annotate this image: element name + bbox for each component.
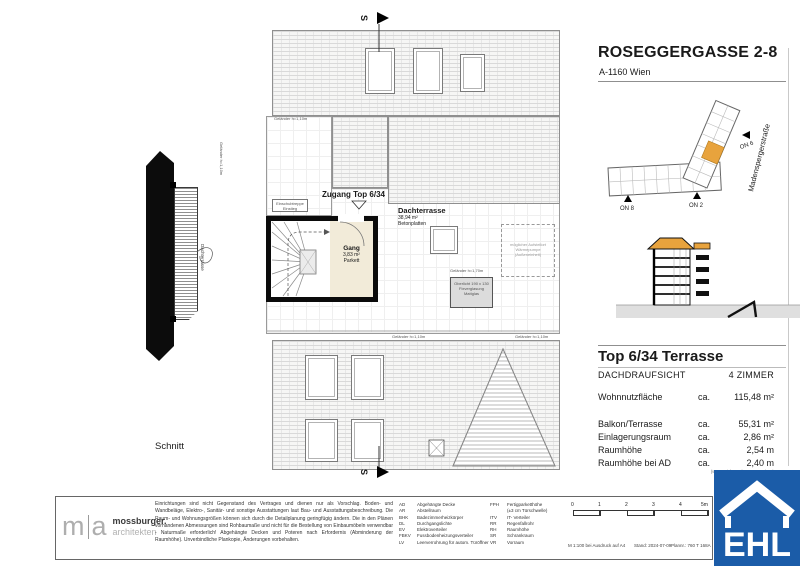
header-rule xyxy=(598,81,786,82)
ehl-logo: EHL xyxy=(714,470,800,566)
unit-title: Top 6/34 Terrasse xyxy=(598,348,723,365)
legend-column-1: ADAbgehängte Decke ARAbstellraum BHKBade… xyxy=(399,502,489,546)
entrance-on2: ON 2 xyxy=(689,203,704,209)
print-scale-note: M 1:100 bei Ausdruck auf A4 xyxy=(568,543,625,548)
terrace-floor: Betonplatten xyxy=(398,221,446,227)
plan-number: Plannr.: 760 T 168A xyxy=(671,543,711,548)
unit-rule-bottom xyxy=(598,367,786,368)
entrance-on6: ON 6 xyxy=(739,140,755,151)
architect-mark-divider xyxy=(88,515,89,539)
plan-date: Stand: 2024-07-09 xyxy=(634,543,671,548)
site-plan: ON 8 ON 2 ON 6 Madenspergerstraße xyxy=(593,92,798,220)
project-address: A-1160 Wien xyxy=(599,67,650,77)
unit-subrow: DACHDRAUFSICHT 4 ZIMMER xyxy=(598,370,774,380)
section-sliver-label: Dachterrasse xyxy=(200,244,205,271)
disclaimer-text: Einrichtungen sind nicht Gegenstand des … xyxy=(155,501,393,545)
area-row: Balkon/Terrasse ca. 55,31 m² xyxy=(598,419,774,429)
section-letter-bottom: S xyxy=(359,469,369,475)
railing-label-bottom-left: Geländer h=1,10m xyxy=(392,335,425,340)
architect-mark-a: a xyxy=(92,513,107,540)
ehl-house-icon: EHL xyxy=(714,470,800,566)
room-count: 4 ZIMMER xyxy=(729,370,774,380)
area-row: Einlagerungsraum ca. 2,86 m² xyxy=(598,432,774,442)
unit-rule-top xyxy=(598,345,786,346)
plan-sheet: Gang 3,83 m² Parkett möglicher Aufstello… xyxy=(0,0,800,566)
area-row: Raumhöhe bei AD ca. 2,40 m xyxy=(598,458,774,468)
terrace-label: Dachterrasse 38,94 m² Betonplatten xyxy=(398,206,446,227)
street-name: Madenspergerstraße xyxy=(746,123,772,193)
schnitt-label: Schnitt xyxy=(155,441,184,452)
legend-column-2: FPHFertigparketthöhe (±3 cm Türschwelle)… xyxy=(490,502,547,546)
view-type: DACHDRAUFSICHT xyxy=(598,370,686,380)
section-letter-top: S xyxy=(359,15,369,21)
scale-bar: 0 1 2 3 4 5m xyxy=(570,502,710,520)
entrance-on8: ON 8 xyxy=(620,206,635,212)
railing-label-top: Geländer h=1,10m xyxy=(274,117,307,122)
building-section-icon xyxy=(616,233,800,333)
ehl-brand-text: EHL xyxy=(723,526,791,564)
railing-label-tall: Geländer h=1,70m xyxy=(450,269,483,274)
zugang-label: Zugang Top 6/34 xyxy=(322,190,385,199)
area-row: Raumhöhe ca. 2,54 m xyxy=(598,445,774,455)
railing-label-left: Geländer h=1,10m xyxy=(218,142,223,175)
railing-label-bottom-right: Geländer h=1,10m xyxy=(515,335,548,340)
area-row: Wohnnutzfläche ca. 115,48 m² xyxy=(598,392,774,402)
architect-mark-m: m xyxy=(62,513,85,540)
terrace-name: Dachterrasse xyxy=(398,206,446,215)
architect-logo: m a mossburger. architekten xyxy=(62,513,167,540)
project-title: ROSEGGERGASSE 2-8 xyxy=(598,44,777,62)
